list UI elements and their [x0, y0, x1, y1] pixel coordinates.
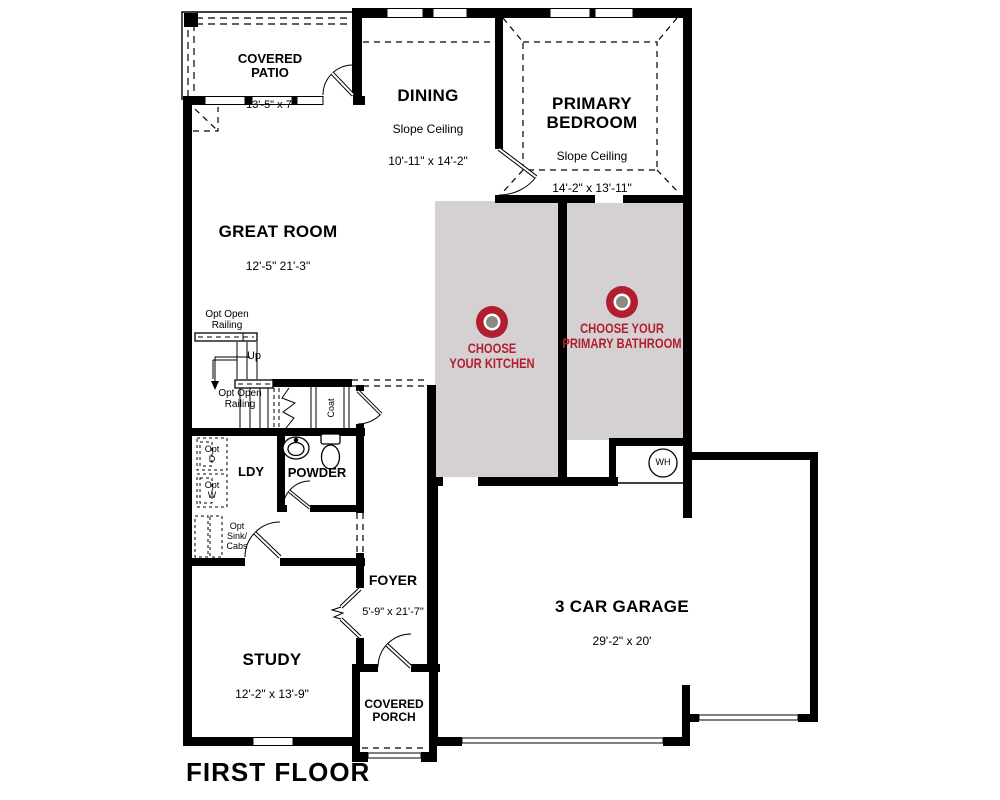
room-dims: 10'-11" x 14'-2" [388, 155, 468, 168]
garage-door-third [699, 715, 798, 720]
room-label-powder: POWDER [288, 466, 347, 481]
room-dims: 14'-2" x 13'-11" [547, 182, 638, 195]
room-label-primary-bedroom: PRIMARY BEDROOM Slope Ceiling 14'-2" x 1… [547, 76, 638, 214]
opt-sink-cabs-label: Opt Sink/ Cabs [226, 521, 247, 551]
room-name: 3 CAR GARAGE [555, 597, 689, 616]
room-label-covered-patio: COVERED PATIO 13'-5" x 7' [238, 34, 302, 129]
floor-plan-drawing [0, 0, 1000, 800]
opt-cabs-box [210, 516, 222, 557]
room-label-foyer: FOYER 5'-9" x 21'-7" [362, 555, 424, 637]
floor-plan: COVERED PATIO 13'-5" x 7' DINING Slope C… [0, 0, 1000, 800]
room-dims: 12'-5" 21'-3" [219, 260, 338, 273]
water-heater [616, 449, 683, 483]
room-ceiling: Slope Ceiling [388, 123, 468, 136]
up-label: Up [247, 350, 261, 362]
room-name: FOYER [362, 573, 424, 589]
room-dims: 29'-2" x 20' [555, 635, 689, 648]
room-label-dining: DINING Slope Ceiling 10'-11" x 14'-2" [388, 68, 468, 187]
choose-kitchen-icon[interactable] [476, 306, 508, 338]
room-name: DINING [388, 86, 468, 105]
garage-door-main [462, 738, 663, 743]
plan-title: FIRST FLOOR [186, 757, 370, 788]
coat-closet-label: Coat [326, 398, 336, 417]
powder-fixtures [283, 434, 340, 469]
room-label-study: STUDY 12'-2" x 13'-9" [235, 632, 309, 719]
room-name: GREAT ROOM [219, 222, 338, 241]
room-dims: 13'-5" x 7' [238, 99, 302, 111]
room-label-great-room: GREAT ROOM 12'-5" 21'-3" [219, 204, 338, 291]
room-label-garage: 3 CAR GARAGE 29'-2" x 20' [555, 579, 689, 666]
opt-washer-label: Opt W [205, 480, 220, 500]
room-label-laundry: LDY [238, 465, 264, 480]
toilet-tank [321, 434, 340, 444]
room-name: COVERED PATIO [238, 52, 302, 81]
opt-open-railing-label-lower: Opt Open Railing [218, 388, 261, 410]
room-ceiling: Slope Ceiling [547, 150, 638, 163]
porch-step [368, 753, 421, 758]
opt-sink-box [195, 516, 208, 557]
opt-open-railing-label-upper: Opt Open Railing [205, 309, 248, 331]
choose-kitchen-label[interactable]: CHOOSE YOUR KITCHEN [449, 341, 534, 371]
choose-primary-bathroom-label[interactable]: CHOOSE YOUR PRIMARY BATHROOM [562, 321, 681, 351]
kitchen-option-zone[interactable] [435, 201, 558, 477]
room-dims: 12'-2" x 13'-9" [235, 688, 309, 701]
choose-primary-bathroom-icon[interactable] [606, 286, 638, 318]
room-name: PRIMARY BEDROOM [547, 94, 638, 132]
room-dims: 5'-9" x 21'-7" [362, 606, 424, 618]
water-heater-label: WH [656, 457, 671, 467]
opt-dryer-label: Opt D [205, 444, 220, 464]
room-label-covered-porch: COVERED PORCH [364, 698, 423, 725]
room-name: STUDY [235, 650, 309, 669]
